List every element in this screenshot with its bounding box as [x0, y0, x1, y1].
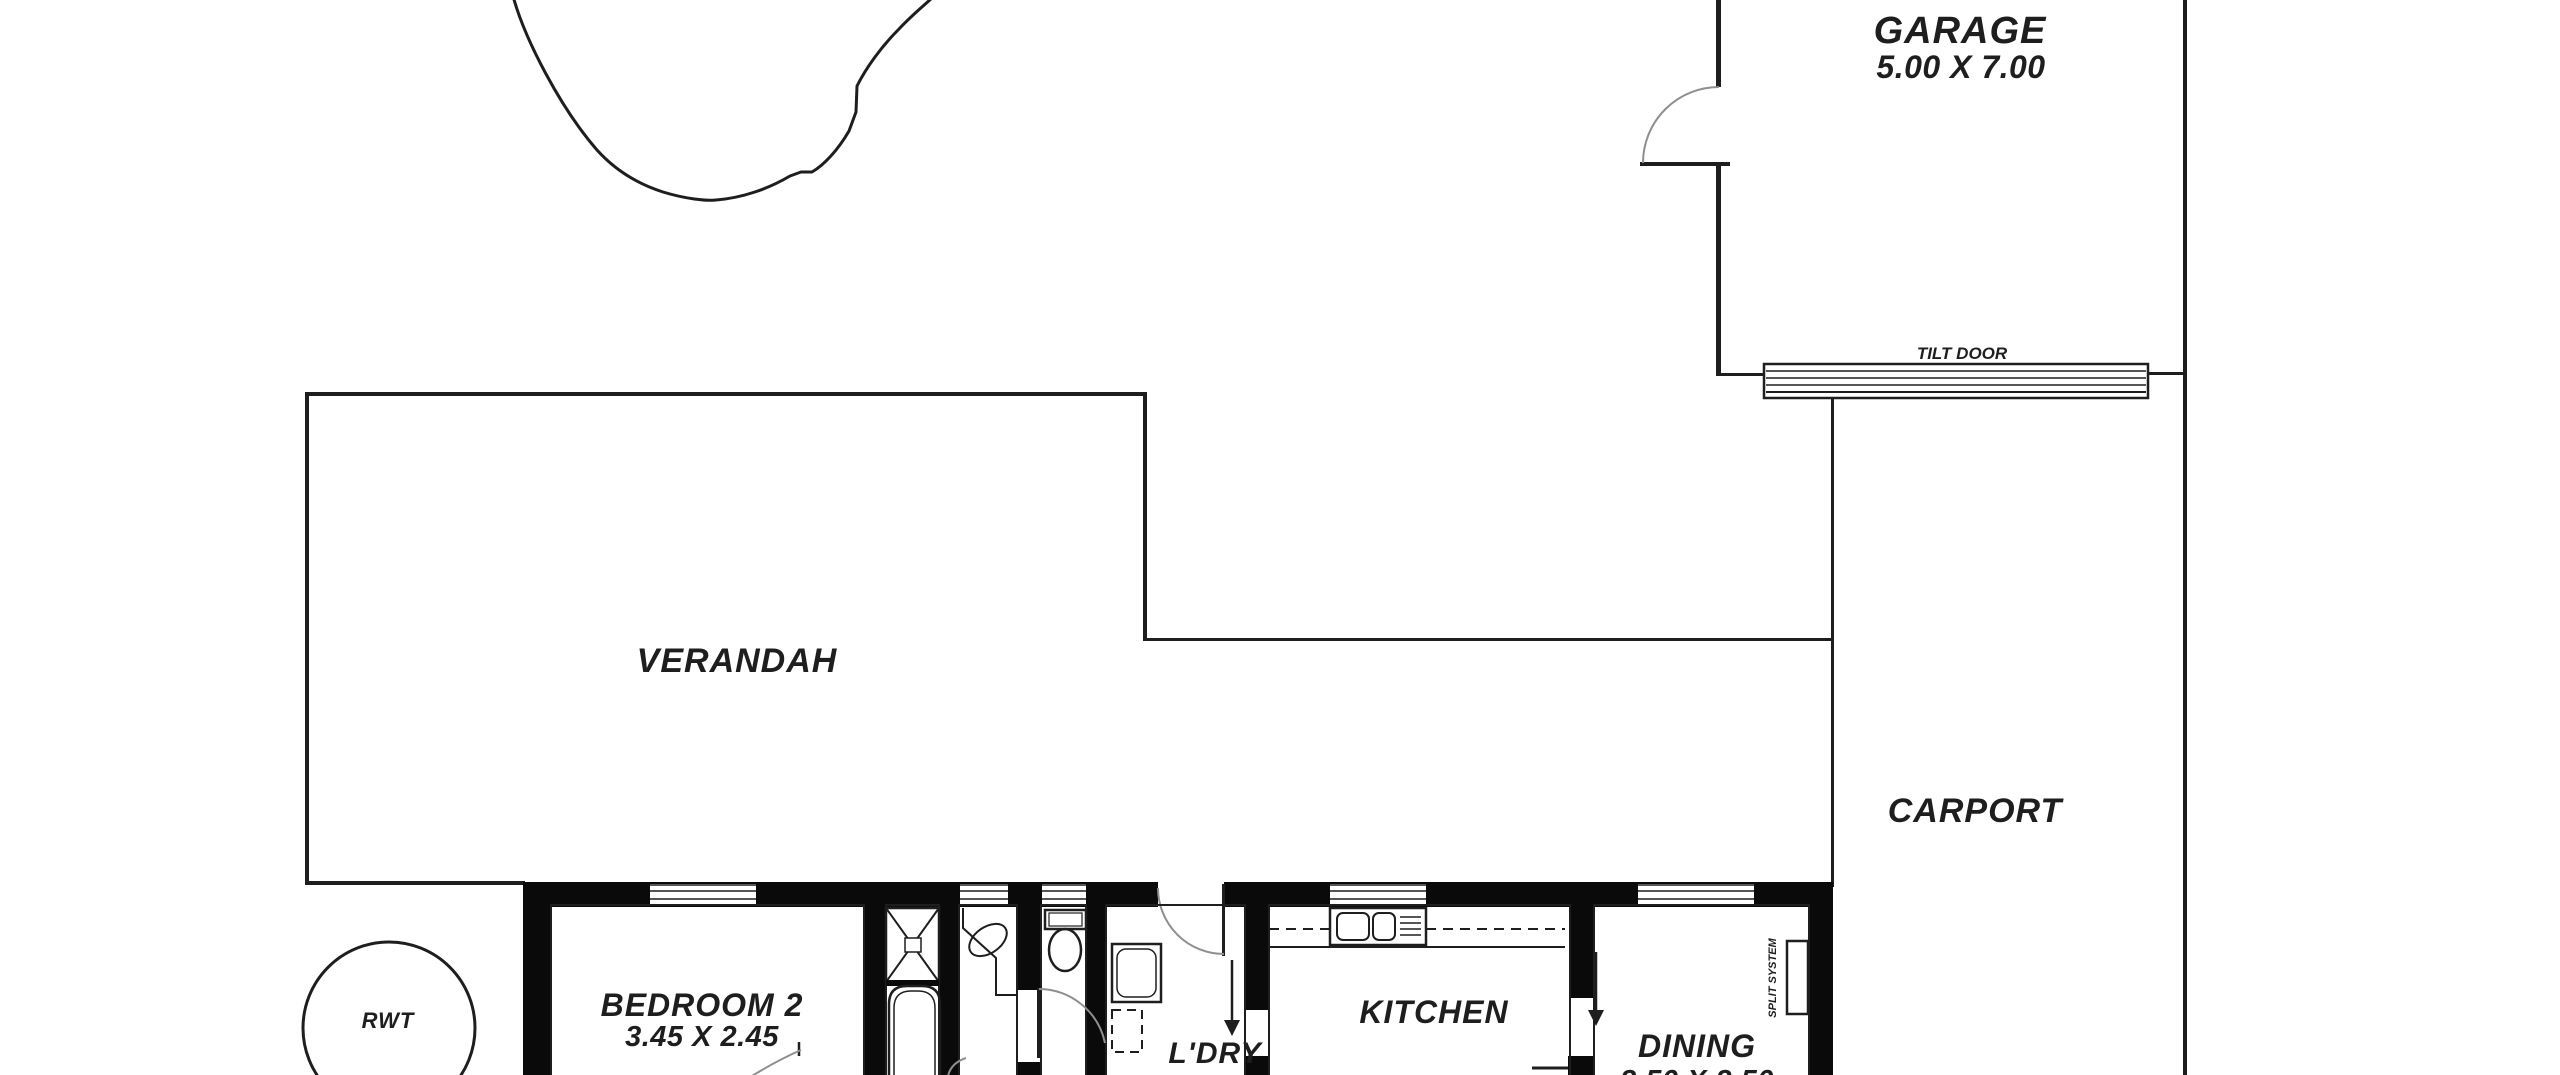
bedroom2-right-wall	[865, 882, 885, 1075]
bathroom-wall-stub	[1018, 1062, 1040, 1075]
garage-side-door-leaf	[1640, 162, 1730, 166]
bedroom2-left-wall	[523, 882, 550, 1075]
tilt-door	[1764, 364, 2185, 398]
plan-background	[0, 0, 2560, 1075]
window-toilet	[1042, 884, 1086, 905]
garage-left-wall-upper	[1716, 0, 1721, 87]
kitchen-left-wall	[1246, 882, 1268, 1010]
tilt-door-right-connector	[2148, 372, 2185, 375]
rwt-label: RWT	[362, 1008, 415, 1033]
toilet-right-wall	[1087, 905, 1105, 1075]
paved-area-step-line	[1143, 638, 1833, 641]
floor-plan-page: GARAGE 5.00 X 7.00 TILT DOOR VERANDAH CA…	[0, 0, 2560, 1075]
garage-left-wall-lower	[1716, 166, 1721, 376]
verandah-right-edge	[1143, 392, 1147, 641]
carport-left-line	[1831, 398, 1834, 887]
dining-dims: 3.50 X 3.50	[1620, 1065, 1774, 1075]
verandah-bottom-edge	[305, 881, 525, 885]
house-right-wall	[1810, 882, 1833, 1075]
verandah-label: VERANDAH	[637, 642, 838, 680]
garage-label: GARAGE	[1874, 10, 2047, 52]
back-door-leaf	[1222, 884, 1225, 956]
garage-wall-connector	[1716, 373, 1766, 376]
site-right-boundary	[2183, 0, 2187, 1075]
tilt-door-label: TILT DOOR	[1917, 344, 2008, 363]
kitchen-dining-wall	[1571, 905, 1593, 998]
window-bathroom	[960, 884, 1008, 905]
verandah-left-edge	[305, 392, 309, 885]
garage-dims: 5.00 X 7.00	[1876, 49, 2045, 85]
window-dining	[1638, 884, 1754, 905]
bath-strip-right-wall	[940, 905, 958, 1075]
split-system-label: SPLIT SYSTEM	[1767, 937, 1779, 1017]
bathroom-right-wall	[1018, 905, 1040, 990]
carport-label: CARPORT	[1888, 792, 2065, 830]
laundry-label: L'DRY	[1168, 1037, 1263, 1070]
kitchen-label: KITCHEN	[1359, 994, 1508, 1030]
bedroom2-dims: 3.45 X 2.45	[625, 1021, 779, 1053]
window-kitchen	[1330, 884, 1426, 905]
kitchen-dining-wall-stub	[1568, 1056, 1593, 1075]
floor-plan-canvas: GARAGE 5.00 X 7.00 TILT DOOR VERANDAH CA…	[0, 0, 2560, 1075]
window-bedroom2	[650, 884, 756, 905]
verandah-top-edge	[305, 392, 1147, 396]
bedroom2-label: BEDROOM 2	[601, 987, 804, 1023]
toilet-door-leaf	[1037, 988, 1040, 1058]
split-system-unit	[1787, 941, 1808, 1014]
dining-label: DINING	[1638, 1028, 1756, 1064]
